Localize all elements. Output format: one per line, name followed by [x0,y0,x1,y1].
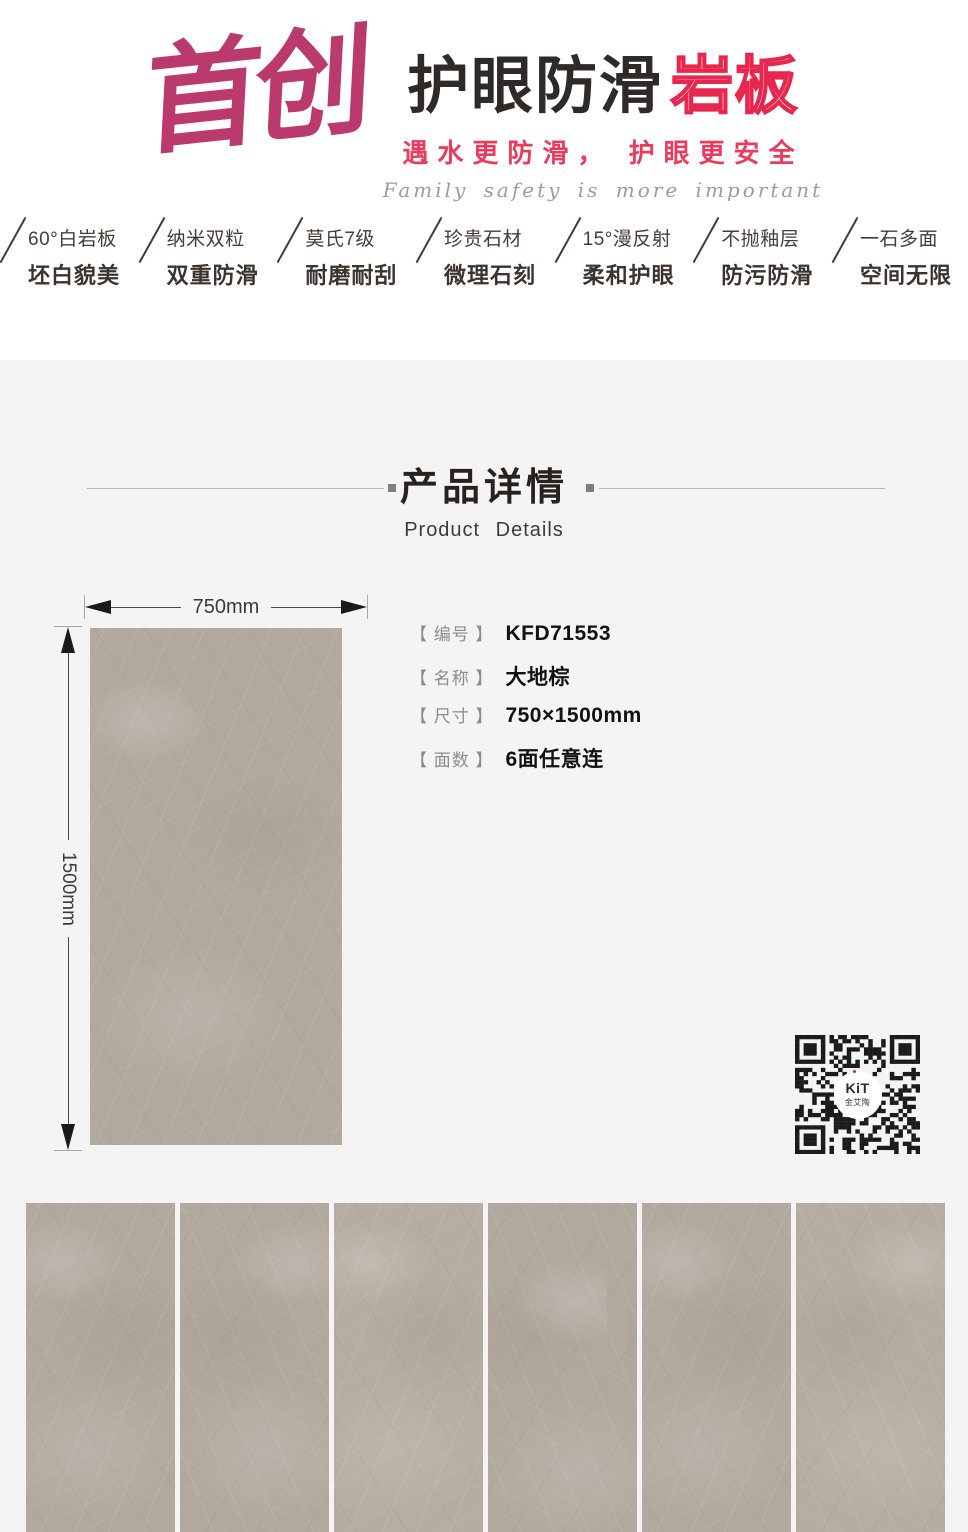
tile-face-6 [796,1203,945,1532]
dimension-tick [54,1150,82,1151]
feature-line2: 双重防滑 [167,258,259,290]
height-dimension: 1500mm [53,626,83,1151]
logo-title: 护眼防滑岩板 [383,56,823,118]
slash-icon [554,217,581,263]
spec-label: 【 面数 】 [410,746,493,771]
feature-item: 15°漫反射 柔和护眼 [561,224,675,290]
section-title-cn: 产品详情 [0,456,968,511]
product-tile-image [90,628,342,1145]
spec-row: 【 尺寸 】 750×1500mm [410,702,642,727]
feature-item: 珍贵石材 微理石刻 [422,224,536,290]
brand-header: 首创 护眼防滑岩板 遇水更防滑， 护眼更安全 Family safety is … [0,0,968,290]
spec-row: 【 面数 】 6面任意连 [410,743,642,768]
feature-item: 不抛釉层 防污防滑 [699,224,813,290]
promo-page: 首创 护眼防滑岩板 遇水更防滑， 护眼更安全 Family safety is … [0,0,968,1532]
feature-line1: 不抛釉层 [721,224,813,251]
arrow-up-icon [61,627,75,653]
tile-faces-row [0,1203,968,1532]
feature-line1: 纳米双粒 [167,224,259,251]
tile-face-5 [642,1203,791,1532]
qr-logo-kit: KiT [845,1081,869,1095]
height-dimension-label: 1500mm [57,840,79,938]
qr-logo-red-dot-icon [853,1070,856,1073]
feature-item: 纳米双粒 双重防滑 [145,224,259,290]
spec-label: 【 名称 】 [410,664,493,689]
tile-face-2 [180,1203,329,1532]
qr-code: KiT 金艾陶 [795,1035,920,1154]
features-row: 60°白岩板 坯白貌美 纳米双粒 双重防滑 莫氏7级 耐磨耐刮 珍贵石材 微理石… [0,204,968,290]
logo-title-black: 护眼防滑 [407,52,663,121]
tile-face-4 [488,1203,637,1532]
spec-value-name: 大地棕 [505,661,570,691]
arrow-right-icon [341,600,367,614]
slash-icon [693,217,720,263]
logo-subtitle-en: Family safety is more important [383,178,823,202]
qr-logo-cn: 金艾陶 [845,1097,871,1108]
brand-logo: 首创 护眼防滑岩板 遇水更防滑， 护眼更安全 Family safety is … [0,0,968,204]
feature-line2: 耐磨耐刮 [305,258,397,290]
width-dimension-label: 750mm [181,596,272,619]
feature-item: 莫氏7级 耐磨耐刮 [283,224,397,290]
slash-icon [138,217,165,263]
spec-value-faces: 6面任意连 [505,743,603,773]
spec-row: 【 名称 】 大地棕 [410,661,642,686]
arrow-down-icon [61,1124,75,1150]
width-dimension: 750mm [84,595,368,619]
feature-line2: 防污防滑 [721,258,813,290]
feature-line2: 微理石刻 [444,258,536,290]
feature-line1: 60°白岩板 [28,224,120,251]
feature-line1: 莫氏7级 [305,224,397,251]
arrow-left-icon [85,600,111,614]
product-details-section: 产品详情 Product Details 750mm 1500mm [0,360,968,1532]
title-rule-right [599,488,885,489]
spec-value-size: 750×1500mm [505,704,641,728]
section-title: 产品详情 Product Details [0,456,968,542]
dimension-tick [367,595,368,619]
feature-line2: 空间无限 [860,258,952,290]
spec-row: 【 编号 】 KFD71553 [410,620,642,645]
spec-list: 【 编号 】 KFD71553 【 名称 】 大地棕 【 尺寸 】 750×15… [410,620,642,784]
slash-icon [0,217,26,263]
feature-line1: 珍贵石材 [444,224,536,251]
feature-line2: 柔和护眼 [583,258,675,290]
spec-label: 【 尺寸 】 [410,702,493,727]
logo-subtitle-cn: 遇水更防滑， 护眼更安全 [383,133,823,170]
title-square-right [586,484,594,492]
feature-line2: 坯白貌美 [28,258,120,290]
feature-line1: 一石多面 [860,224,952,251]
qr-center-logo: KiT 金艾陶 [834,1071,882,1119]
slash-icon [415,217,442,263]
feature-item: 一石多面 空间无限 [838,224,952,290]
slash-icon [831,217,858,263]
tile-face-3 [334,1203,483,1532]
spec-label: 【 编号 】 [410,620,493,645]
logo-title-pink: 岩板 [671,52,799,121]
spec-value-code: KFD71553 [505,622,611,646]
brand-calligraphy-text: 首创 [142,14,368,168]
slash-icon [277,217,304,263]
section-title-en: Product Details [0,519,968,542]
tile-face-1 [26,1203,175,1532]
feature-line1: 15°漫反射 [583,224,675,251]
feature-item: 60°白岩板 坯白貌美 [6,224,120,290]
